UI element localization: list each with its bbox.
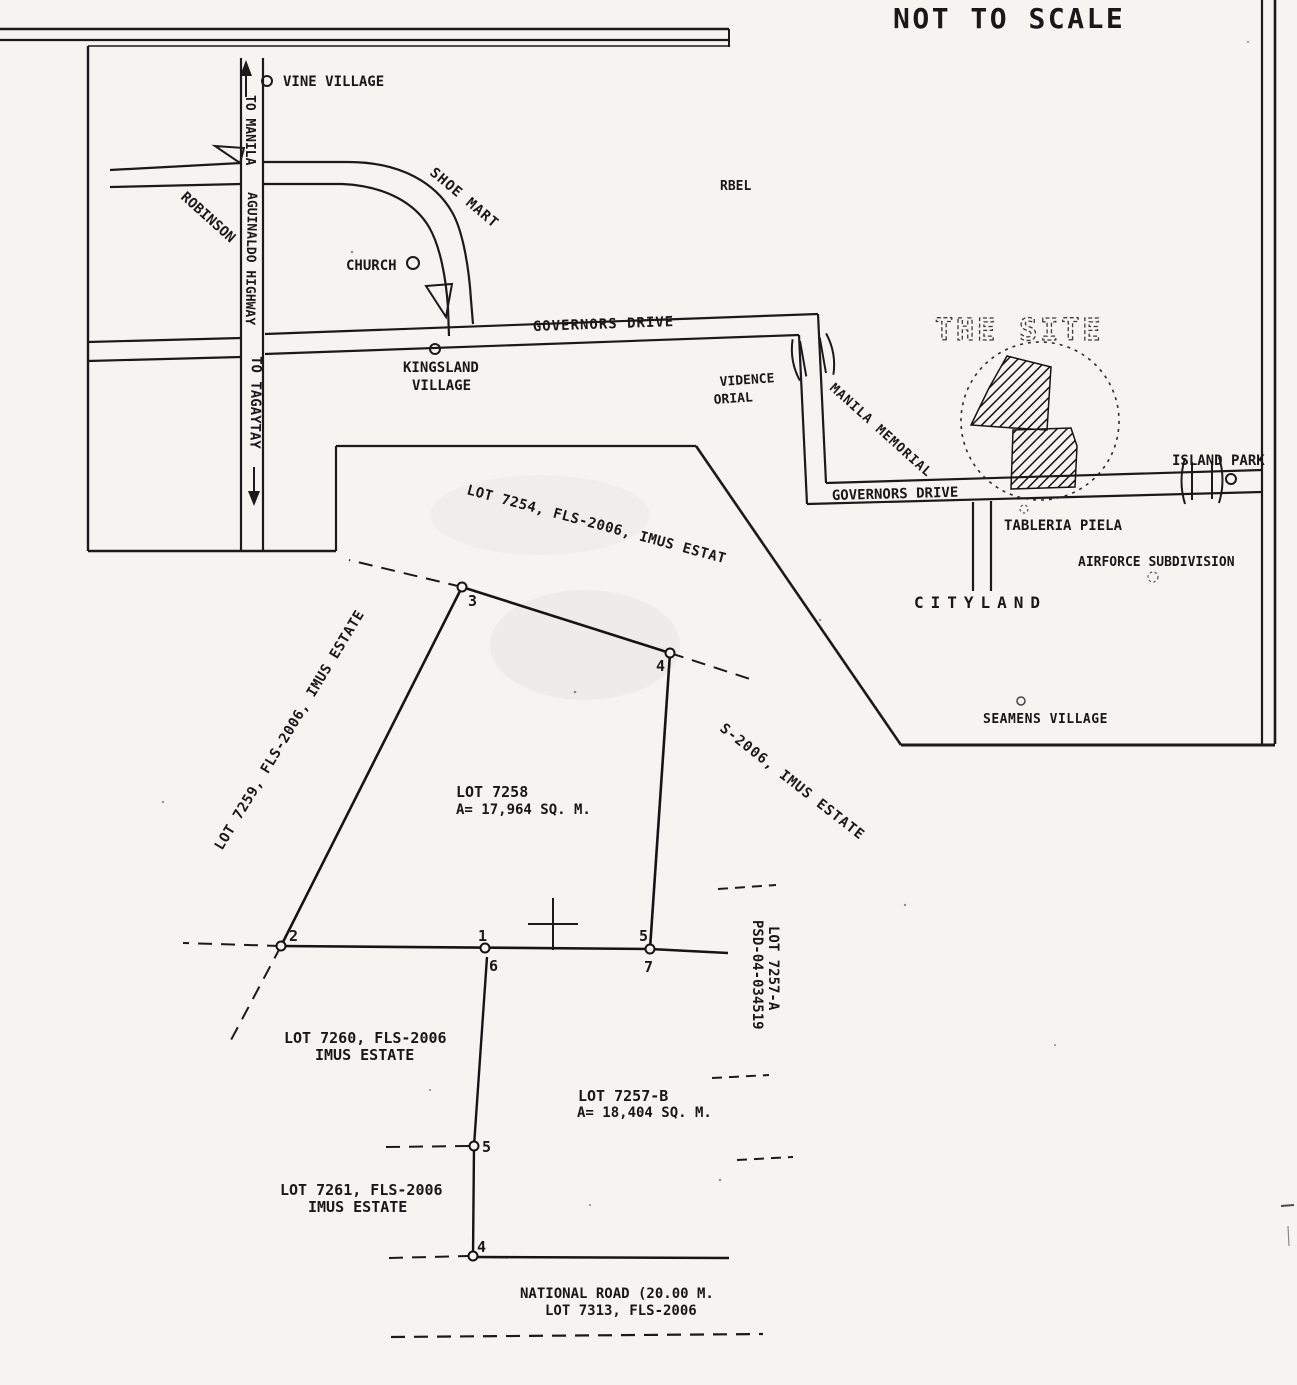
lot-7260-label-line1: LOT 7260, FLS-2006: [284, 1029, 447, 1047]
scanned-survey-page: NOT TO SCALE VINE VILLAGE TO MANILA AGUI…: [0, 0, 1297, 1385]
aguinaldo-highway-label: AGUINALDO HIGHWAY: [242, 192, 259, 325]
to-tagaytay-label: TO TAGAYTAY: [246, 356, 264, 450]
the-site-label: THE SITE: [935, 313, 1104, 348]
point-label-4b: 4: [477, 1238, 486, 1256]
church-label: CHURCH: [346, 258, 397, 274]
point-5-circle: [646, 945, 655, 954]
point-label-1: 1: [478, 927, 487, 945]
point-label-5b: 5: [482, 1138, 491, 1156]
providence-label-line2: ORIAL: [713, 390, 753, 408]
kingsland-village-label-line2: VILLAGE: [412, 378, 471, 394]
lot-7261-label-line1: LOT 7261, FLS-2006: [280, 1181, 443, 1199]
lot-7257b-label-line1: LOT 7257-B: [578, 1087, 668, 1105]
lot-7257b-area-label: A= 18,404 SQ. M.: [577, 1105, 712, 1121]
lot-7257a-psd-label: PSD-04-034519: [749, 920, 765, 1030]
point-label-5: 5: [639, 927, 648, 945]
lot-7313-label: LOT 7313, FLS-2006: [545, 1303, 697, 1319]
governors-drive-lower-label: GOVERNORS DRIVE: [832, 485, 959, 504]
point-4-circle: [666, 649, 675, 658]
survey-map-svg: NOT TO SCALE VINE VILLAGE TO MANILA AGUI…: [0, 0, 1297, 1385]
tableria-piela-label: TABLERIA PIELA: [1004, 518, 1123, 534]
national-road-label: NATIONAL ROAD (20.00 M.: [520, 1286, 714, 1302]
airforce-subdivision-label: AIRFORCE SUBDIVISION: [1078, 555, 1235, 570]
island-park-label: ISLAND PARK: [1172, 453, 1265, 469]
point-5b-circle: [470, 1142, 479, 1151]
vine-village-label: VINE VILLAGE: [283, 74, 384, 90]
cityland-label: CITYLAND: [914, 593, 1047, 612]
point-label-6: 6: [489, 957, 498, 975]
point-label-2: 2: [289, 927, 298, 945]
lot-7258-label-line1: LOT 7258: [456, 783, 528, 801]
lot-7257a-label-line1: LOT 7257-A: [765, 926, 781, 1011]
to-manila-label: TO MANILA: [242, 95, 257, 166]
point-label-3: 3: [468, 592, 477, 610]
point-label-4: 4: [656, 657, 665, 675]
point-2-circle: [277, 942, 286, 951]
site-hatched-parcel-lower: [1011, 428, 1077, 489]
lot-7258-area-label: A= 17,964 SQ. M.: [456, 802, 591, 818]
point-3-circle: [458, 583, 467, 592]
not-to-scale-label: NOT TO SCALE: [893, 2, 1125, 35]
point-label-7: 7: [644, 958, 653, 976]
lot-7261-label-line2: IMUS ESTATE: [308, 1198, 407, 1216]
seamens-village-label: SEAMENS VILLAGE: [983, 712, 1108, 727]
lot-7260-label-line2: IMUS ESTATE: [315, 1046, 414, 1064]
rbel-label: RBEL: [720, 179, 751, 194]
kingsland-village-label-line1: KINGSLAND: [403, 360, 479, 376]
